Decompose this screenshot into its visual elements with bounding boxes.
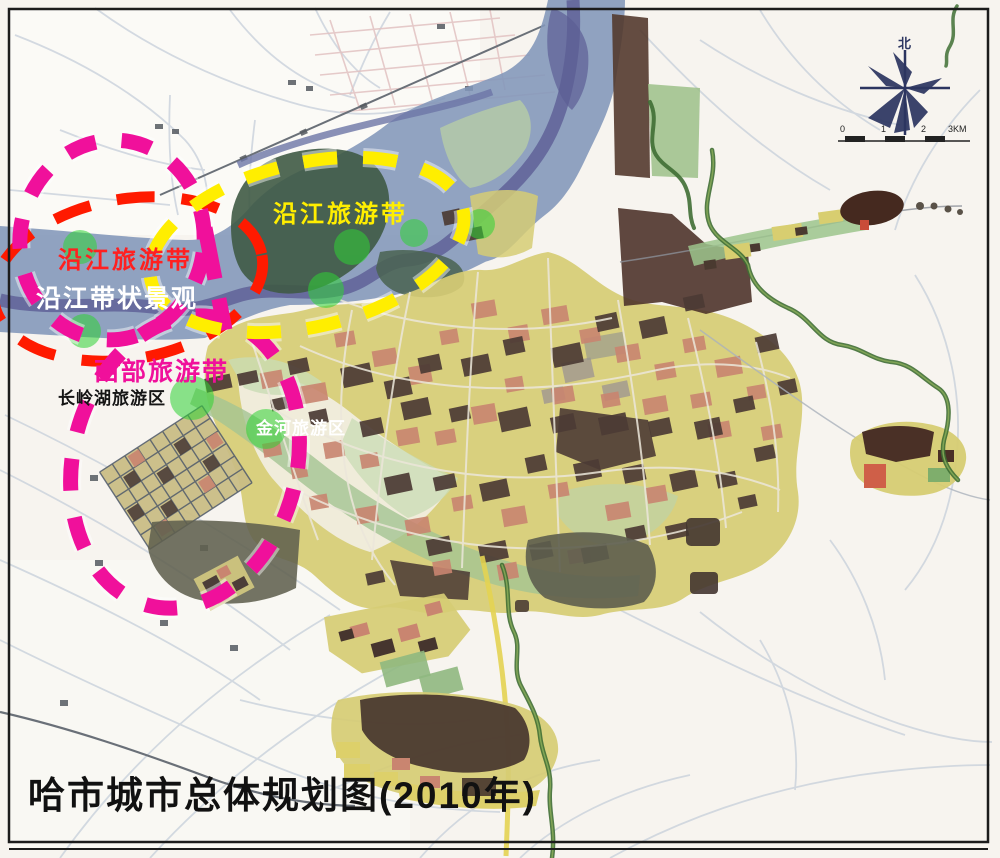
label-western-tourism-belt: 西部旅游带 (94, 357, 229, 386)
label-jinhe-area: 金河旅游区 (255, 418, 346, 438)
map-canvas: 沿江旅游带 沿江旅游带 沿江带状景观 西部旅游带 长岭湖旅游区 金河旅游区 北 … (0, 0, 1000, 858)
scale-label-3: 3KM (948, 124, 967, 134)
scale-label-2: 2 (921, 124, 926, 134)
label-riverside-belt-yellow: 沿江旅游带 (273, 200, 408, 228)
label-changling-lake-area: 长岭湖旅游区 (58, 388, 166, 408)
label-riverside-landscape: 沿江带状景观 (36, 285, 198, 313)
scale-label-0: 0 (840, 124, 845, 134)
page-title: 哈市城市总体规划图(2010年) (28, 774, 537, 816)
city-master-plan-map: 沿江旅游带 沿江旅游带 沿江带状景观 西部旅游带 长岭湖旅游区 金河旅游区 北 … (0, 0, 1000, 858)
south-olive-blob (526, 532, 656, 608)
label-riverside-belt-red: 沿江旅游带 (58, 246, 193, 274)
compass-north-label: 北 (898, 36, 911, 51)
scale-label-1: 1 (881, 124, 886, 134)
